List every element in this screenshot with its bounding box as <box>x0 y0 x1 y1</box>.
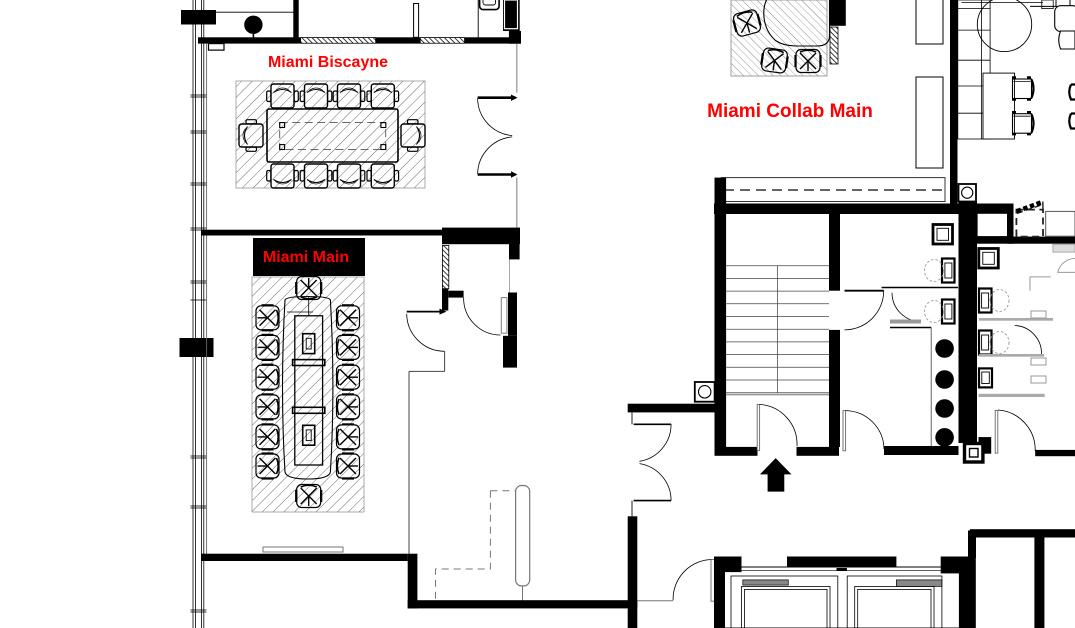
svg-text:Miami Collab Main: Miami Collab Main <box>707 101 873 122</box>
svg-text:Miami Main: Miami Main <box>263 249 349 266</box>
svg-text:Miami Biscayne: Miami Biscayne <box>268 54 388 71</box>
